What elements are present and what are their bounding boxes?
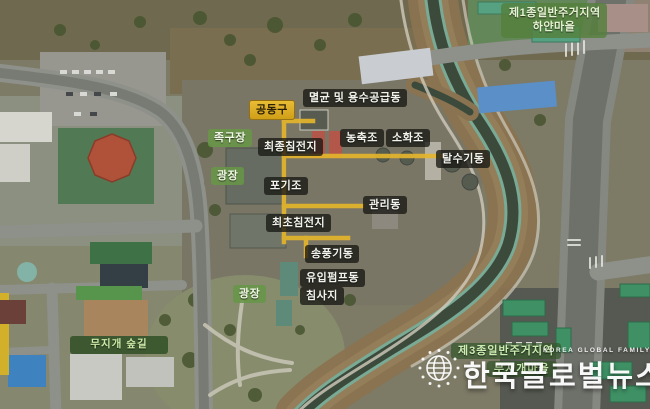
label-admin: 관리동 [363, 196, 407, 214]
watermark-korean: 한국글로벌뉴스 [463, 353, 650, 395]
zone-1-line2: 하얀마을 [533, 21, 575, 33]
label-dewatering: 탈수기동 [436, 150, 490, 168]
label-grit-chamber: 침사지 [300, 287, 344, 305]
zone-1-line1: 제1종일반주거지역 [509, 7, 601, 19]
news-photo: 멸균 및 용수공급동 공동구 최종침전지 농축조 소화조 탈수기동 포기조 관리… [0, 0, 650, 409]
label-plaza-lower: 광장 [233, 285, 266, 303]
label-zone-1-white-village: 제1종일반주거지역 하얀마을 [501, 3, 607, 38]
label-foot-volleyball: 족구장 [208, 129, 252, 147]
news-watermark: KOREA GLOBAL FAMILY NEWS 한국글로벌뉴스 [413, 336, 650, 398]
label-thickener: 농축조 [340, 129, 384, 147]
label-rainbow-trail: 무지개 숲길 [70, 336, 168, 354]
label-primary-sedimentation: 최초침전지 [266, 214, 331, 232]
label-inflow-pump: 유입펌프동 [300, 269, 365, 287]
label-blower: 송풍기동 [305, 245, 359, 263]
label-aeration: 포기조 [264, 177, 308, 195]
globe-icon [415, 346, 463, 394]
label-final-sedimentation: 최종침전지 [258, 138, 323, 156]
label-digester: 소화조 [386, 129, 430, 147]
label-utility-tunnel: 공동구 [249, 100, 295, 120]
label-sterilization-water-supply: 멸균 및 용수공급동 [303, 89, 407, 107]
label-plaza-upper: 광장 [211, 167, 244, 185]
